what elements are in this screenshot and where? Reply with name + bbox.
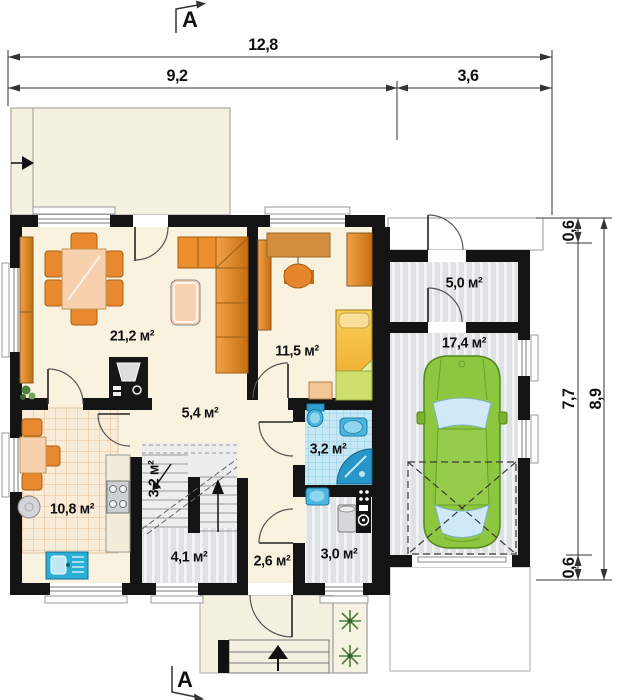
living-wardrobe — [20, 237, 33, 383]
dim-total-width: 12,8 — [248, 35, 278, 55]
dim-garage-width: 3,6 — [457, 66, 478, 86]
window — [45, 583, 127, 603]
boiler — [338, 505, 356, 532]
round-cabinet — [18, 496, 40, 518]
window — [518, 415, 538, 463]
driveway — [390, 567, 530, 671]
room-label-bedroom: 11,5 м² — [275, 343, 319, 360]
storage-floor — [390, 262, 518, 322]
dim-bottom-offset: 0,6 — [559, 557, 579, 578]
porch — [200, 595, 340, 673]
room-label-entry: 2,6 м² — [254, 553, 291, 570]
window — [518, 335, 538, 381]
section-letter-bottom: A — [177, 667, 193, 693]
room-label-utility: 3,0 м² — [321, 546, 358, 563]
floor-plan: 21,2 м² 11,5 м² 5,0 м² 17,4 м² 5,4 м² 3,… — [0, 0, 618, 700]
planter — [333, 593, 367, 673]
car-icon — [417, 356, 507, 548]
utility-sink — [306, 488, 329, 505]
fireplace — [109, 357, 148, 398]
dim-total-height: 8,9 — [586, 388, 606, 409]
window — [320, 583, 368, 603]
kitchen-table — [20, 437, 46, 473]
bed — [336, 310, 372, 400]
washbasin — [340, 418, 367, 436]
window — [2, 433, 22, 497]
dim-main-width: 9,2 — [166, 66, 187, 86]
desk — [267, 233, 330, 257]
wardrobe — [347, 233, 372, 286]
stove — [107, 481, 129, 513]
room-label-stairs: 3,2 м² — [146, 461, 163, 498]
room-label-storage: 5,0 м² — [446, 275, 483, 292]
room-label-kitchen: 10,8 м² — [50, 501, 94, 518]
garage-canopy — [388, 218, 543, 250]
nightstand — [309, 382, 332, 399]
room-label-bathroom: 3,2 м² — [310, 441, 347, 458]
toilet — [307, 404, 324, 427]
coffee-table — [171, 280, 200, 325]
room-label-garage: 17,4 м² — [442, 335, 486, 352]
window — [2, 263, 22, 357]
room-label-vestibule: 4,1 м² — [171, 549, 208, 566]
window — [33, 207, 115, 227]
kitchen-sink — [46, 552, 88, 579]
dim-inner-height: 7,7 — [559, 388, 579, 409]
window — [151, 583, 203, 603]
terrace — [11, 108, 230, 215]
window — [265, 207, 350, 227]
desk-chair — [284, 264, 312, 288]
room-label-living: 21,2 м² — [110, 328, 154, 345]
dim-top-offset: 0,6 — [559, 220, 579, 241]
garage-door — [418, 557, 506, 562]
section-letter-top: A — [182, 7, 198, 33]
meter-panel — [356, 487, 371, 533]
room-label-hall: 5,4 м² — [182, 405, 219, 422]
